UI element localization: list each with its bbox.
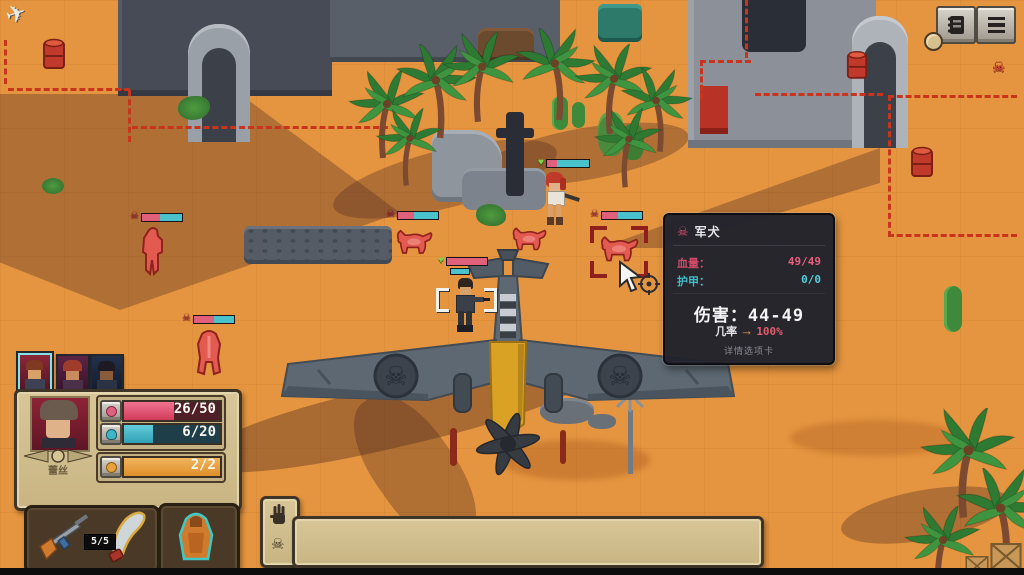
menu-button[interactable]: [976, 6, 1016, 44]
skull-icon: ☠: [182, 314, 191, 324]
action-bar: [292, 516, 764, 568]
skull-icon: ☠: [130, 212, 139, 222]
mouse-cursor: [616, 260, 662, 298]
enemy-dog-rear[interactable]: [192, 328, 226, 376]
enemy-health-bar: ☠: [182, 314, 235, 324]
svg-text:☠: ☠: [608, 361, 631, 391]
party-portrait-2[interactable]: [56, 354, 90, 392]
oil-stain: [560, 430, 566, 464]
skull-icon: ☠: [677, 224, 689, 240]
oil-stain: [450, 428, 457, 466]
ruin-stones: [462, 168, 546, 210]
divider: [673, 245, 825, 246]
selection-bracket-left: [436, 288, 449, 312]
hamburger-icon: [988, 17, 1005, 34]
energy-icon: [100, 423, 122, 445]
svg-text:☠: ☠: [384, 361, 407, 391]
ally-rifle-woman[interactable]: [540, 172, 576, 230]
red-barrel: [42, 38, 66, 70]
hp-value: 49/49: [788, 255, 821, 271]
chance-line: 几率 → 100%: [665, 323, 833, 339]
energy-value: 6/20: [122, 423, 216, 441]
tooltip-title: 军犬: [695, 223, 721, 240]
tooltip-footer[interactable]: 详情选项卡: [665, 344, 833, 357]
armor-value: 0/0: [801, 273, 821, 289]
divider: [673, 293, 825, 294]
character-name: 蕾丝: [22, 462, 94, 477]
heart-icon: ♥: [538, 158, 544, 168]
hp-label: 血量：: [677, 255, 710, 271]
dark-statue-arm: [496, 128, 534, 138]
armor-label: 护甲：: [677, 273, 710, 289]
enemy-health-bar: ☠: [130, 212, 183, 222]
crate: [990, 543, 1022, 570]
game-screen: ☠ ☠ ☠ ☠ ☠: [0, 0, 1024, 575]
enemy-dog[interactable]: [394, 226, 434, 260]
skull-icon: ☠: [590, 210, 599, 220]
enemy-health-bar: ☠: [386, 210, 439, 220]
skull-mode-icon[interactable]: ☠: [271, 535, 284, 553]
party-portrait-3[interactable]: [90, 354, 124, 392]
enemy-health-bar: ☠: [590, 210, 643, 220]
dark-doorway: [742, 0, 806, 52]
hand-icon[interactable]: [269, 503, 289, 527]
compass-pin[interactable]: [924, 32, 943, 51]
palm-tree: [578, 108, 676, 190]
skull-icon: ☠: [386, 210, 395, 220]
red-skull-marker: ☠: [992, 58, 1005, 76]
zone-dotted-line: [8, 88, 130, 91]
selection-bracket-right: [484, 288, 497, 312]
hp-value: 26/50: [122, 400, 216, 418]
enemy-tooltip: ☠ 军犬 血量： 49/49 护甲： 0/0 伤害：44-49 几率 → 100…: [663, 213, 835, 365]
hp-icon: [100, 400, 122, 422]
zone-dotted-line: [755, 93, 883, 96]
journal-icon: [946, 14, 966, 36]
heart-icon: ♥: [438, 256, 444, 266]
dark-statue: [506, 112, 524, 196]
ally-health-bar: ♥: [438, 256, 488, 266]
red-barrel: [910, 146, 934, 178]
bush: [476, 204, 506, 226]
zone-dotted-line: [4, 40, 7, 84]
action-point-icon: [100, 456, 122, 478]
enemy-infantry[interactable]: [136, 226, 170, 276]
zone-dotted-line: [888, 95, 1017, 237]
poncho-gear-slot[interactable]: [168, 507, 224, 565]
ally-health-bar: ♥: [538, 158, 590, 168]
red-barrel: [846, 50, 868, 80]
palm-tree: [360, 108, 456, 188]
action-point-value: 2/2: [122, 456, 216, 474]
chance-arrow-icon: →: [740, 323, 753, 338]
ally-energy-chip: [450, 268, 470, 275]
cactus: [944, 286, 962, 332]
character-portrait[interactable]: [30, 396, 90, 452]
ammo-counter: 5/5: [84, 534, 116, 550]
letterbox-bar: [0, 568, 1024, 575]
zone-dotted-line: [745, 0, 748, 58]
bush: [42, 178, 64, 194]
zone-dotted-line: [128, 90, 131, 142]
party-portrait-1-selected[interactable]: [18, 353, 52, 391]
